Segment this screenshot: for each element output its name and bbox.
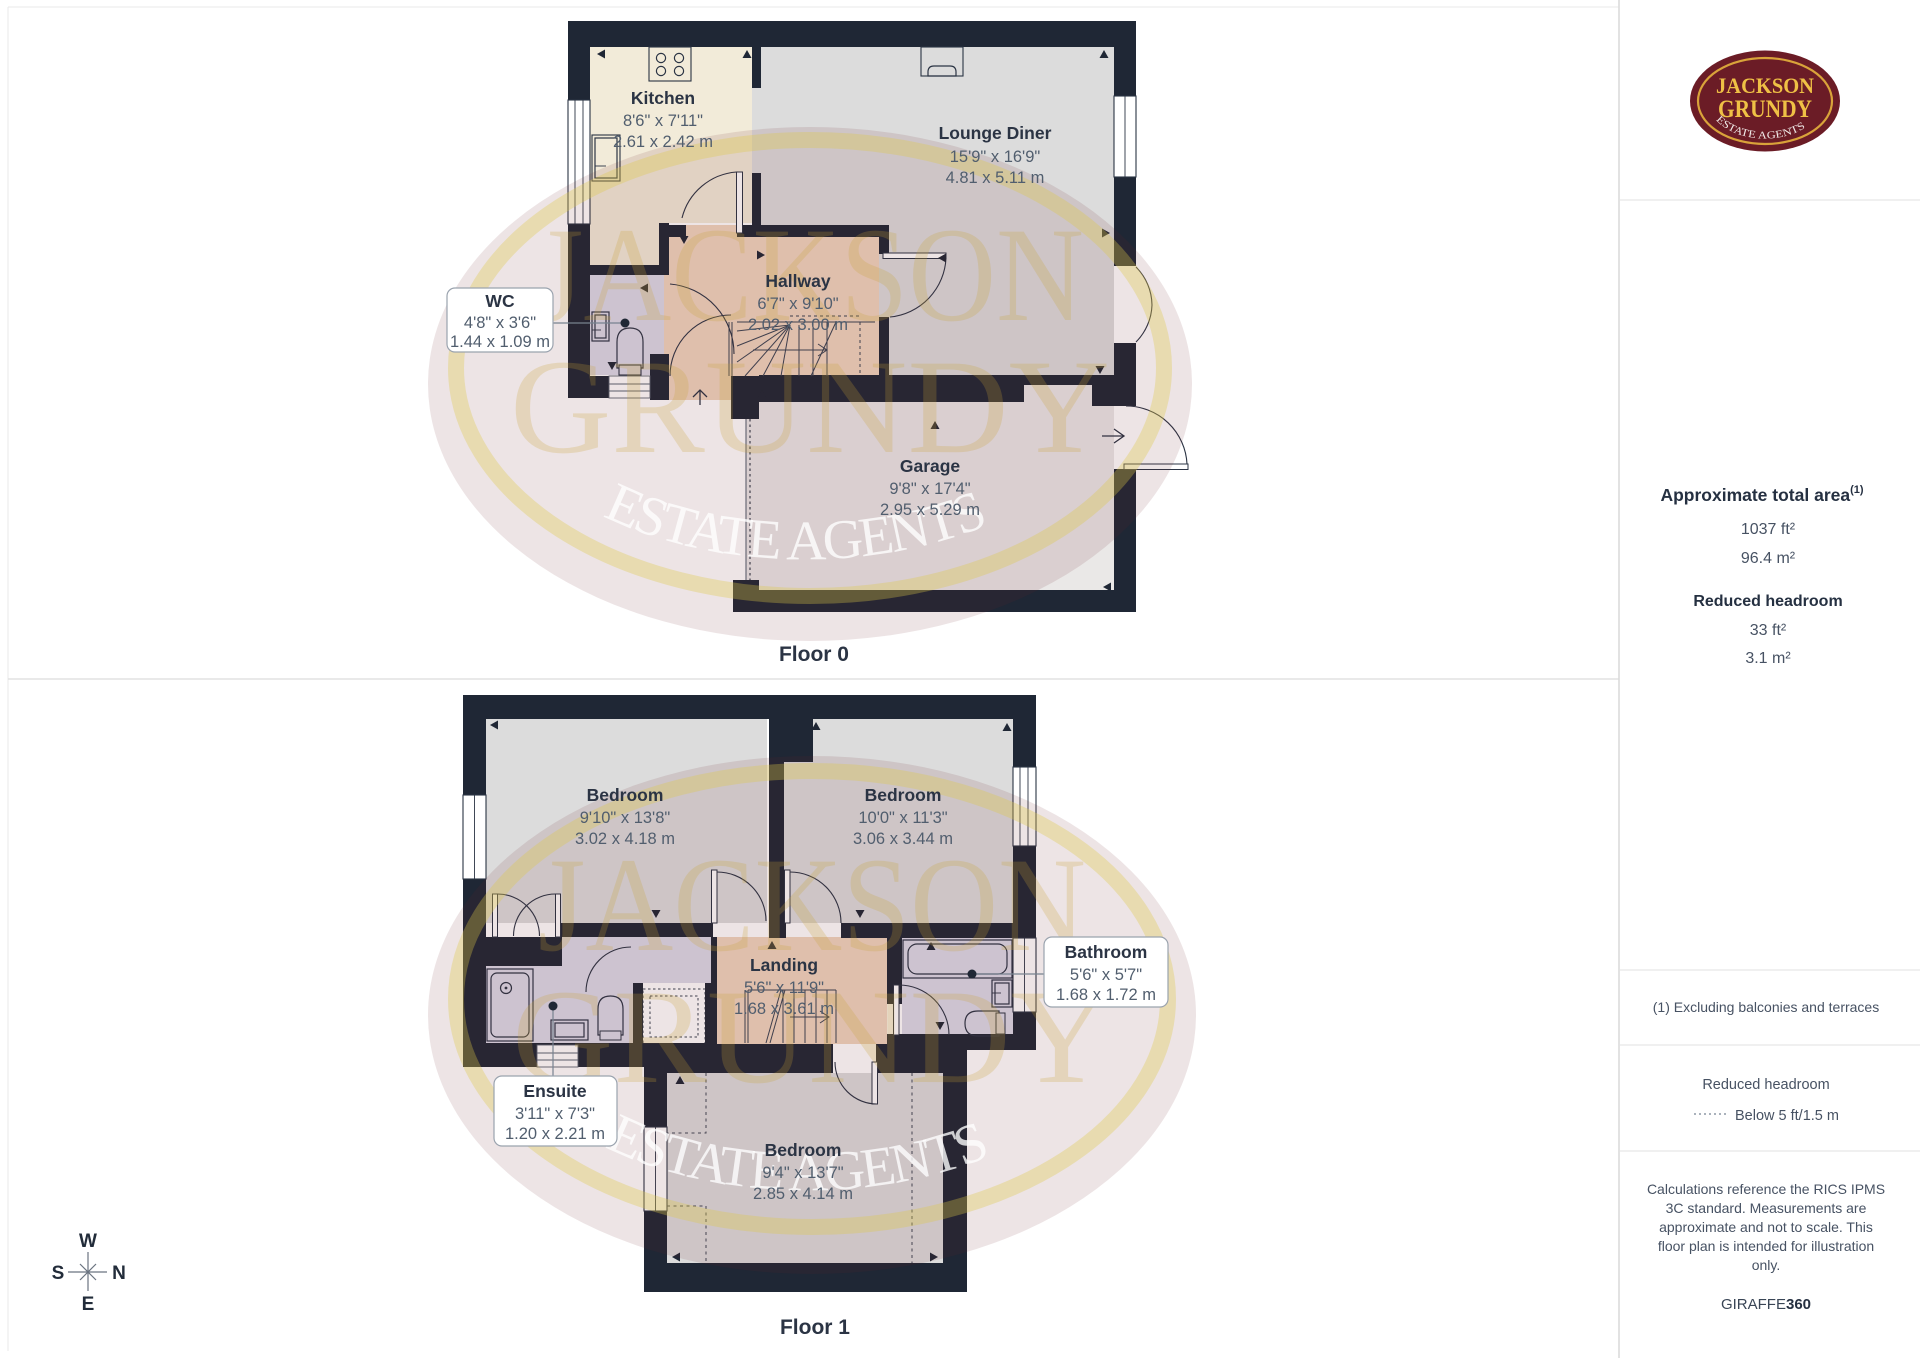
- svg-text:Hallway: Hallway: [765, 271, 830, 291]
- svg-text:Bedroom: Bedroom: [587, 785, 664, 805]
- svg-text:4'8" x 3'6": 4'8" x 3'6": [464, 314, 536, 332]
- svg-text:Ensuite: Ensuite: [523, 1081, 586, 1101]
- svg-text:Landing: Landing: [750, 955, 818, 975]
- svg-text:96.4 m²: 96.4 m²: [1741, 550, 1796, 567]
- svg-text:Bedroom: Bedroom: [865, 785, 942, 805]
- svg-text:GRUNDY: GRUNDY: [510, 333, 1110, 482]
- svg-text:1037 ft²: 1037 ft²: [1741, 521, 1796, 538]
- svg-text:3C standard. Measurements are: 3C standard. Measurements are: [1666, 1200, 1867, 1216]
- svg-text:Approximate total area(1): Approximate total area(1): [1660, 484, 1863, 505]
- svg-text:1.68 x 1.72 m: 1.68 x 1.72 m: [1056, 986, 1156, 1004]
- svg-text:(1) Excluding balconies and te: (1) Excluding balconies and terraces: [1653, 999, 1879, 1015]
- svg-text:N: N: [112, 1263, 126, 1284]
- svg-text:Bathroom: Bathroom: [1065, 942, 1148, 962]
- svg-text:Bedroom: Bedroom: [765, 1140, 842, 1160]
- svg-text:Calculations reference the RIC: Calculations reference the RICS IPMS: [1647, 1181, 1885, 1197]
- svg-text:E: E: [82, 1294, 95, 1315]
- svg-text:W: W: [79, 1231, 97, 1252]
- svg-text:Garage: Garage: [900, 456, 961, 476]
- svg-text:Floor 1: Floor 1: [780, 1316, 850, 1339]
- svg-text:2.85 x 4.14 m: 2.85 x 4.14 m: [753, 1185, 853, 1203]
- svg-text:Lounge Diner: Lounge Diner: [939, 123, 1052, 143]
- svg-text:2.95 x 5.29 m: 2.95 x 5.29 m: [880, 501, 980, 519]
- svg-text:1.44 x 1.09 m: 1.44 x 1.09 m: [450, 333, 550, 351]
- svg-text:8'6" x 7'11": 8'6" x 7'11": [623, 112, 703, 130]
- svg-text:GRUNDY: GRUNDY: [1718, 96, 1812, 123]
- svg-text:Reduced headroom: Reduced headroom: [1702, 1077, 1829, 1093]
- svg-text:6'7" x 9'10": 6'7" x 9'10": [757, 295, 838, 313]
- svg-text:Floor 0: Floor 0: [779, 643, 849, 666]
- svg-text:Reduced headroom: Reduced headroom: [1693, 593, 1842, 610]
- svg-text:approximate and not to scale.: approximate and not to scale. This: [1659, 1219, 1873, 1235]
- svg-text:floor plan is intended for ill: floor plan is intended for illustration: [1658, 1238, 1874, 1254]
- svg-text:10'0" x 11'3": 10'0" x 11'3": [858, 809, 947, 827]
- svg-text:4.81 x 5.11 m: 4.81 x 5.11 m: [946, 169, 1045, 187]
- svg-text:2.02 x 3.00 m: 2.02 x 3.00 m: [748, 316, 848, 334]
- svg-text:5'6" x 11'9": 5'6" x 11'9": [744, 979, 824, 997]
- svg-text:3'11" x 7'3": 3'11" x 7'3": [515, 1105, 595, 1123]
- svg-text:5'6" x 5'7": 5'6" x 5'7": [1070, 966, 1142, 984]
- svg-text:Kitchen: Kitchen: [631, 88, 695, 108]
- svg-text:1.20 x 2.21 m: 1.20 x 2.21 m: [505, 1125, 605, 1143]
- svg-text:WC: WC: [485, 291, 515, 311]
- svg-text:9'4" x 13'7": 9'4" x 13'7": [762, 1164, 843, 1182]
- svg-text:Below 5 ft/1.5 m: Below 5 ft/1.5 m: [1735, 1108, 1839, 1124]
- svg-text:GIRAFFE360: GIRAFFE360: [1721, 1296, 1811, 1313]
- svg-text:1.68 x 3.61 m: 1.68 x 3.61 m: [734, 1000, 834, 1018]
- svg-text:15'9" x 16'9": 15'9" x 16'9": [950, 148, 1041, 166]
- svg-text:3.02 x 4.18 m: 3.02 x 4.18 m: [575, 830, 675, 848]
- svg-text:9'10" x 13'8": 9'10" x 13'8": [580, 809, 671, 827]
- svg-text:S: S: [52, 1263, 65, 1284]
- svg-text:only.: only.: [1752, 1257, 1781, 1273]
- svg-text:9'8" x 17'4": 9'8" x 17'4": [889, 480, 970, 498]
- svg-text:2.61 x 2.42 m: 2.61 x 2.42 m: [613, 133, 713, 151]
- svg-text:3.1 m²: 3.1 m²: [1745, 650, 1791, 667]
- svg-text:33 ft²: 33 ft²: [1750, 622, 1787, 639]
- svg-text:JACKSON: JACKSON: [1716, 73, 1814, 98]
- svg-text:3.06 x 3.44 m: 3.06 x 3.44 m: [853, 830, 953, 848]
